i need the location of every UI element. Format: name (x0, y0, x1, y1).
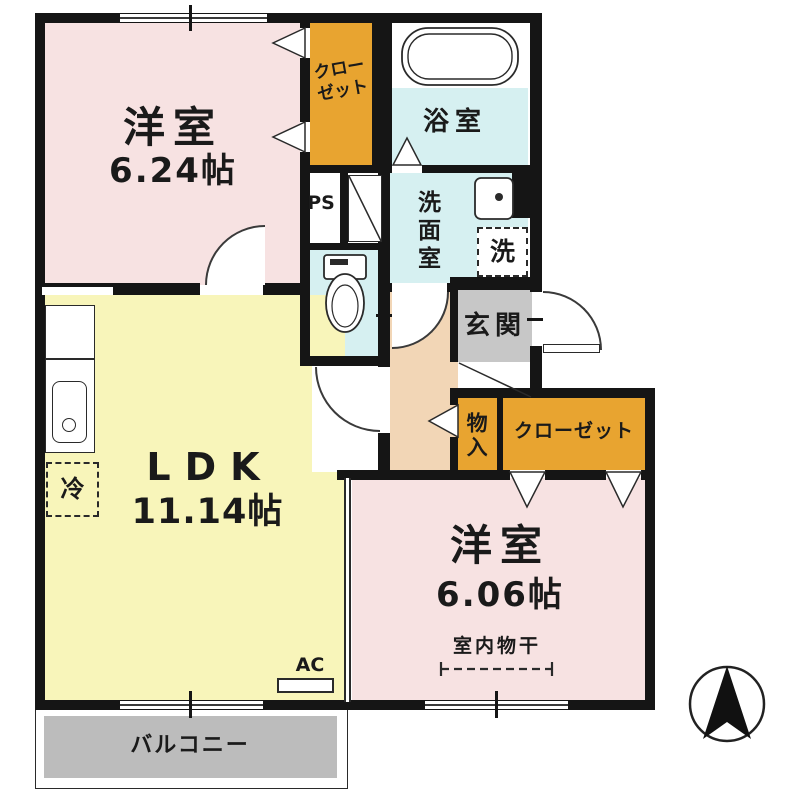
wall (545, 470, 606, 480)
wall (378, 433, 390, 472)
ps-label: PS (300, 193, 342, 215)
ac-unit (277, 678, 334, 693)
wall (645, 388, 655, 710)
laundry-label: 洗 (490, 238, 515, 267)
wall (450, 437, 458, 472)
wall (512, 170, 530, 218)
sliding-partition (344, 478, 351, 702)
window (120, 14, 267, 22)
wall (530, 13, 542, 292)
bedroom1-size: 6.24帖 (55, 152, 291, 191)
wall (378, 283, 392, 292)
wall (337, 470, 510, 480)
door-panel (348, 175, 382, 242)
ac-label: AC (285, 655, 335, 677)
wall (641, 470, 655, 480)
wall (300, 152, 310, 362)
ldk-label: LDK (105, 446, 315, 490)
wall (450, 398, 458, 405)
bathtub-zone (392, 22, 528, 88)
closet-bottom-label: クローゼット (503, 421, 645, 443)
entrance-label: 玄関 (457, 312, 533, 342)
bedroom2-size: 6.06帖 (380, 576, 620, 615)
storage-label: 物入 (464, 404, 488, 468)
drying-note: 室内物干 (412, 636, 582, 658)
ldk-size: 11.14帖 (95, 492, 320, 532)
door-arc (543, 291, 602, 350)
wall (300, 13, 310, 28)
north-compass-icon (690, 666, 764, 741)
floor-plan: 冷 洗 (0, 0, 800, 798)
window-tick (189, 691, 192, 718)
window-tick (495, 691, 498, 718)
wall (450, 388, 655, 398)
wall (300, 165, 392, 173)
wall (35, 13, 45, 710)
window-tick (189, 5, 192, 31)
wall (35, 13, 542, 23)
bath-label: 浴室 (400, 108, 510, 138)
fridge-label: 冷 (61, 476, 85, 504)
laundry-space: 洗 (477, 227, 528, 277)
entrance-door-leaf (543, 344, 600, 353)
wall (300, 243, 390, 250)
kitchen-counter (45, 305, 95, 453)
kitchen-sink (52, 381, 87, 443)
balcony-label: バルコニー (90, 733, 290, 758)
bedroom2-label: 洋室 (390, 522, 610, 570)
counter-hatch (42, 287, 113, 295)
fridge-space: 冷 (46, 462, 99, 517)
counter-divider (46, 358, 94, 360)
washroom-label: 洗面室 (413, 182, 439, 282)
bedroom1-label: 洋室 (60, 104, 286, 152)
wall (300, 356, 390, 366)
wall (450, 277, 542, 290)
sink-drain (62, 418, 76, 432)
